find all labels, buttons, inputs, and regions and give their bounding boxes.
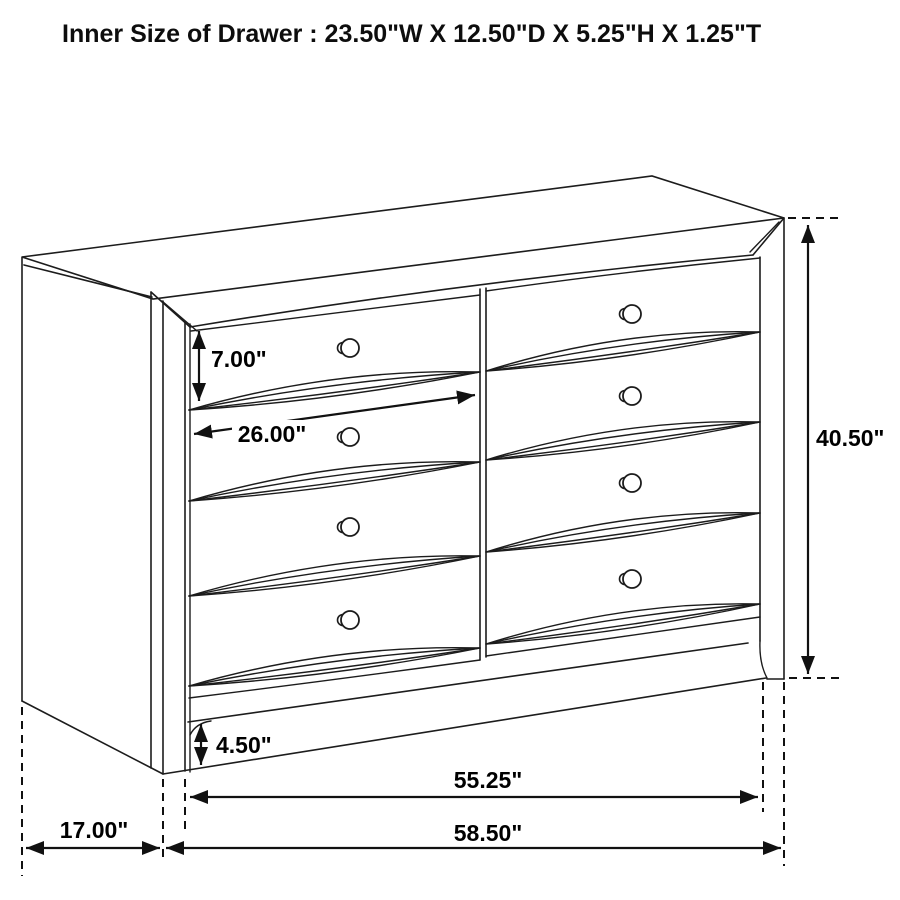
drawer-knob-icon bbox=[620, 305, 642, 323]
drawer-knob-icon bbox=[620, 387, 642, 405]
dim-label-drawer-opening-width: 26.00" bbox=[238, 421, 306, 447]
left-side-panel bbox=[22, 257, 163, 774]
drawer-knob-icon bbox=[338, 611, 360, 629]
drawer-knob-icon bbox=[620, 474, 642, 492]
dim-label-overall-width: 58.50" bbox=[454, 820, 522, 846]
dim-drawer-opening-height: 7.00" bbox=[199, 331, 267, 401]
drawer-knob-icon bbox=[338, 428, 360, 446]
drawer-knob-icon bbox=[338, 339, 360, 357]
dresser-top bbox=[22, 176, 784, 331]
drawer-knob-icon bbox=[338, 518, 360, 536]
front-right-leg bbox=[760, 218, 784, 679]
drawer-knob-icon bbox=[620, 570, 642, 588]
dresser-dimension-diagram: 7.00" 26.00" 40.50" 4.50" 55.25" 58.50" … bbox=[0, 0, 900, 900]
dim-side-depth: 17.00" bbox=[26, 817, 160, 848]
drawer-separators-left bbox=[189, 372, 480, 686]
drawer-top-edges bbox=[191, 258, 760, 331]
dim-label-front-width: 55.25" bbox=[454, 767, 522, 793]
extension-lines bbox=[22, 218, 840, 876]
dim-label-drawer-opening-height: 7.00" bbox=[211, 346, 267, 372]
dim-overall-height: 40.50" bbox=[808, 225, 884, 674]
dim-drawer-opening-width: 26.00" bbox=[194, 395, 475, 447]
dim-front-width: 55.25" bbox=[190, 767, 758, 797]
dresser-drawing bbox=[22, 176, 784, 774]
drawer-knobs bbox=[338, 305, 642, 629]
dim-overall-width: 58.50" bbox=[166, 820, 781, 848]
dim-label-side-depth: 17.00" bbox=[60, 817, 128, 843]
dim-label-overall-height: 40.50" bbox=[816, 425, 884, 451]
dim-label-base-height: 4.50" bbox=[216, 732, 272, 758]
center-divider bbox=[480, 288, 486, 660]
